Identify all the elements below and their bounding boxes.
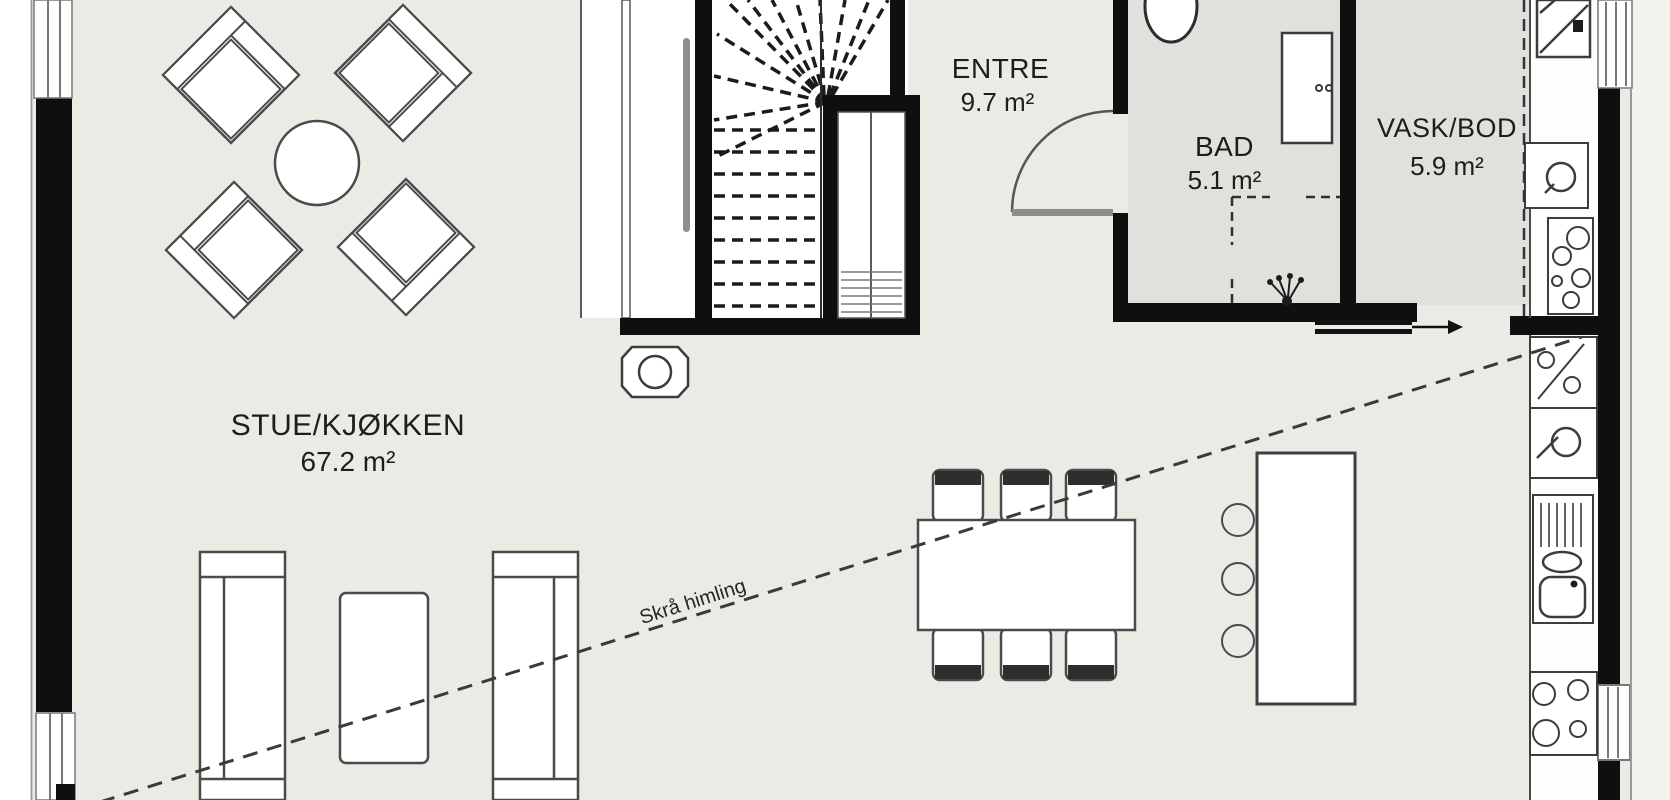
wall-bad-left-upper <box>1113 0 1128 114</box>
wall-wet-room-bottom <box>1113 303 1417 322</box>
sofa <box>200 552 285 800</box>
window-right-top <box>1598 0 1632 88</box>
room-label-vask-bod: VASK/BOD <box>1357 114 1537 142</box>
laundry-unit-icon <box>1548 218 1593 314</box>
room-label-bad: BAD <box>1152 132 1297 161</box>
window-left-bottom <box>36 713 75 800</box>
room-area-entre: 9.7 m² <box>925 89 1070 116</box>
kitchen-sink-icon <box>1533 495 1593 623</box>
room-area-vask-bod: 5.9 m² <box>1357 153 1537 180</box>
closet-partition <box>622 0 630 318</box>
wall-right <box>1598 88 1620 685</box>
kitchen-fixtures <box>1530 335 1597 800</box>
door-leaf <box>1012 209 1113 216</box>
dining-chair <box>1001 470 1051 522</box>
dining-chair <box>933 470 983 522</box>
dining-chair <box>1066 470 1116 522</box>
room-label-entre: ENTRE <box>928 54 1073 83</box>
floor-plan: STUE/KJØKKEN 67.2 m² ENTRE 9.7 m² BAD 5.… <box>0 0 1670 800</box>
sofa <box>493 552 578 800</box>
window-left-top <box>34 0 72 98</box>
wall-left <box>36 98 72 712</box>
bar-stool <box>1222 563 1254 595</box>
kitchen-island <box>1257 453 1355 704</box>
wall-stair-left <box>695 0 712 320</box>
dining-set <box>918 470 1135 680</box>
window-right-middle <box>1598 685 1630 760</box>
cooktop-icon <box>1530 672 1597 755</box>
wall-bad-left-lower <box>1113 213 1128 305</box>
laundry-bench <box>1537 0 1590 57</box>
dining-table <box>918 520 1135 630</box>
bathroom-cabinet <box>1282 33 1332 143</box>
wall-right-bottom <box>1598 760 1620 800</box>
dining-chair <box>933 628 983 680</box>
room-area-bad: 5.1 m² <box>1152 167 1297 194</box>
closet-door-leaf <box>683 38 690 232</box>
room-area-stue: 67.2 m² <box>198 447 498 476</box>
wood-stove-icon <box>622 347 688 397</box>
room-label-stue: STUE/KJØKKEN <box>198 410 498 442</box>
stair-closet <box>823 95 920 330</box>
dining-chair <box>1001 628 1051 680</box>
bar-stool <box>1222 504 1254 536</box>
round-table <box>275 121 359 205</box>
wall-bad-vask-divider <box>1340 0 1356 303</box>
bar-stool <box>1222 625 1254 657</box>
outside-right <box>1630 0 1670 800</box>
dining-chair <box>1066 628 1116 680</box>
dishwasher-icon <box>1530 337 1597 408</box>
wall-stair-right-top <box>890 0 905 95</box>
appliance-icon <box>1530 408 1597 478</box>
coffee-table <box>340 593 428 763</box>
